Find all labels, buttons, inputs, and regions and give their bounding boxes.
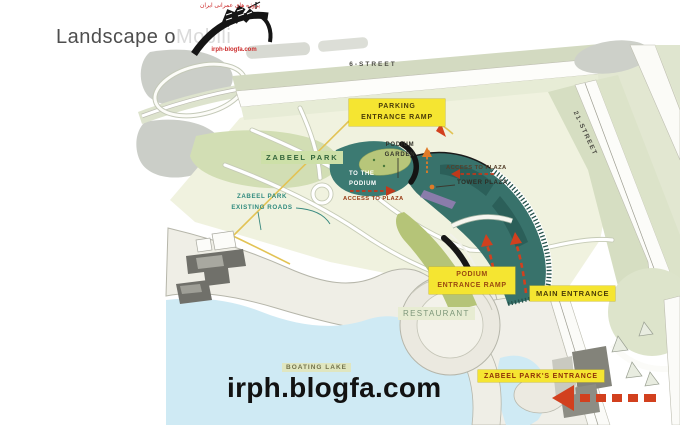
- parking-entrance-ramp-callout: PARKING ENTRANCE RAMP: [349, 99, 445, 126]
- podium-entrance-ramp-callout: PODIUM ENTRANCE RAMP: [429, 267, 515, 294]
- zabeel-park-label: ZABEEL PARK: [261, 151, 343, 164]
- zabeel-park-entrance-callout: ZABEEL PARK'S ENTRANCE: [478, 370, 604, 382]
- logo-swoosh-tail: [260, 16, 271, 42]
- blog-watermark: irph.blogfa.com: [227, 372, 442, 404]
- boating-lake-label: BOATING LAKE: [282, 363, 351, 372]
- tower-plaza-label: TOWER PLAZA: [457, 179, 508, 186]
- access-to-plaza-east-label: ACCESS TO PLAZA: [446, 165, 507, 171]
- street-6-label: 6-STREET: [331, 61, 415, 68]
- site-plan-page: Landscape oMobili پروژه های عمرانی ایران…: [0, 0, 680, 425]
- to-the-podium-label: TO THE PODIUM: [349, 169, 389, 189]
- access-to-plaza-west-label: ACCESS TO PLAZA: [343, 196, 404, 202]
- existing-roads-label: ZABEEL PARK EXISTING ROADS: [226, 192, 298, 214]
- logo-farsi-tagline: پروژه های عمرانی ایران: [200, 2, 260, 9]
- main-entrance-callout: MAIN ENTRANCE: [530, 286, 615, 301]
- page-title-primary: Landscape o: [56, 26, 176, 48]
- restaurant-label: RESTAURANT: [398, 307, 475, 320]
- tower-plaza-dot: [430, 185, 435, 190]
- logo-site-url: irph-blogfa.com: [211, 47, 256, 53]
- podium-garden-label: PODIUM GARDEN: [377, 140, 423, 160]
- irph-logo: پروژه های عمرانی ایران irph-blogfa.com: [190, 0, 270, 58]
